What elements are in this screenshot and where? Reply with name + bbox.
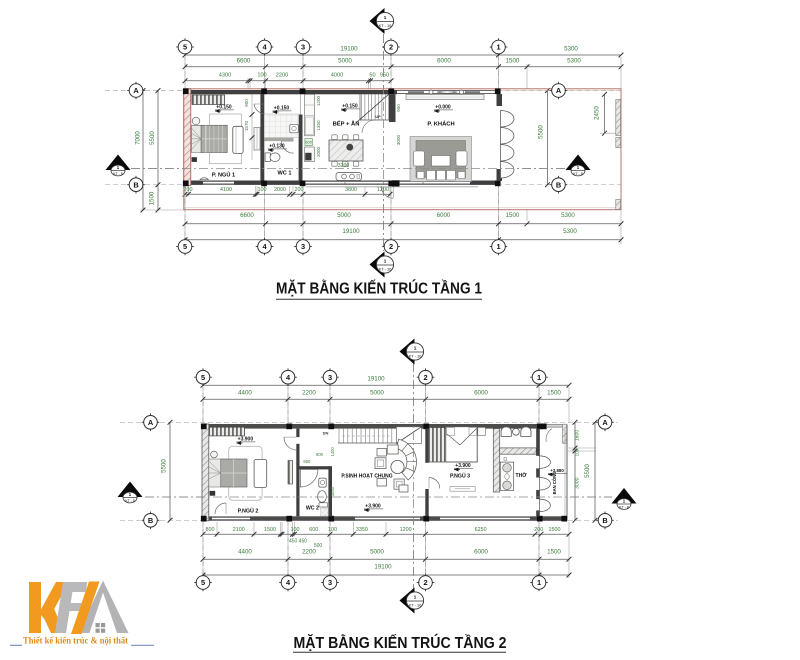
svg-text:1: 1: [537, 373, 541, 382]
svg-text:3: 3: [328, 373, 332, 382]
svg-text:3800: 3800: [345, 187, 357, 193]
svg-text:19100: 19100: [342, 228, 360, 235]
svg-text:3: 3: [301, 43, 305, 52]
svg-text:1200: 1200: [316, 95, 321, 106]
svg-text:19100: 19100: [367, 376, 385, 383]
svg-text:1: 1: [414, 595, 417, 600]
svg-text:450 450: 450 450: [289, 539, 307, 545]
svg-text:50: 50: [369, 73, 375, 79]
svg-text:200: 200: [295, 187, 304, 193]
svg-text:KT - 10: KT - 10: [409, 603, 423, 608]
svg-text:1200: 1200: [400, 527, 412, 533]
svg-text:1500: 1500: [506, 212, 520, 219]
svg-text:THỜ: THỜ: [516, 471, 528, 479]
svg-text:B: B: [556, 180, 561, 189]
svg-text:B: B: [602, 516, 607, 525]
svg-text:BAN CÔNG: BAN CÔNG: [552, 472, 557, 495]
svg-text:+3.880: +3.880: [550, 468, 564, 473]
svg-text:A: A: [133, 86, 139, 95]
svg-text:BẾP + ĂN: BẾP + ĂN: [333, 121, 360, 128]
svg-text:6000: 6000: [474, 548, 488, 555]
svg-text:1500: 1500: [547, 390, 561, 397]
svg-text:200: 200: [534, 527, 543, 533]
svg-text:A: A: [602, 418, 608, 427]
svg-text:2200: 2200: [302, 548, 316, 555]
svg-text:1: 1: [537, 578, 541, 587]
svg-text:5500: 5500: [584, 464, 591, 478]
svg-text:5: 5: [201, 578, 205, 587]
svg-text:2200: 2200: [276, 73, 288, 79]
svg-text:B: B: [133, 180, 138, 189]
svg-text:5300: 5300: [564, 46, 578, 53]
svg-text:KT - 8: KT - 8: [619, 506, 629, 510]
svg-text:4000: 4000: [331, 73, 343, 79]
svg-text:19100: 19100: [340, 46, 358, 53]
svg-text:KT - 10: KT - 10: [409, 354, 423, 359]
svg-text:WC 2: WC 2: [306, 506, 319, 512]
svg-text:1570: 1570: [244, 120, 249, 131]
svg-text:1500: 1500: [264, 527, 276, 533]
svg-text:100: 100: [291, 527, 300, 533]
svg-text:2: 2: [423, 578, 427, 587]
svg-text:5300: 5300: [567, 57, 581, 64]
svg-text:2: 2: [389, 242, 393, 251]
svg-text:1: 1: [414, 346, 417, 351]
svg-text:100: 100: [328, 527, 337, 533]
svg-text:19100: 19100: [374, 564, 392, 571]
svg-text:2: 2: [423, 373, 427, 382]
svg-text:A: A: [556, 86, 562, 95]
svg-text:2100: 2100: [233, 527, 245, 533]
svg-text:4400: 4400: [238, 548, 252, 555]
svg-text:800: 800: [206, 527, 215, 533]
svg-text:7000: 7000: [135, 131, 142, 145]
svg-text:950: 950: [380, 73, 389, 79]
svg-text:KT - 10: KT - 10: [379, 267, 393, 272]
svg-text:1500: 1500: [506, 57, 520, 64]
svg-text:6250: 6250: [475, 527, 487, 533]
svg-text:3050: 3050: [330, 486, 335, 496]
svg-text:5500: 5500: [161, 459, 168, 473]
svg-text:200: 200: [184, 187, 193, 193]
svg-text:A: A: [148, 418, 154, 427]
svg-text:100: 100: [257, 73, 266, 79]
svg-text:1500: 1500: [549, 527, 561, 533]
svg-text:3200: 3200: [338, 163, 350, 169]
svg-text:5500: 5500: [538, 125, 545, 139]
svg-text:850: 850: [303, 459, 311, 464]
svg-text:950: 950: [396, 104, 401, 112]
svg-text:5000: 5000: [337, 212, 351, 219]
svg-text:2: 2: [389, 43, 393, 52]
svg-text:B: B: [148, 516, 153, 525]
svg-text:1: 1: [384, 259, 387, 264]
svg-text:6000: 6000: [474, 390, 488, 397]
svg-text:3000: 3000: [574, 477, 580, 489]
svg-text:1500: 1500: [149, 191, 156, 205]
svg-text:5300: 5300: [563, 228, 577, 235]
svg-text:4400: 4400: [238, 390, 252, 397]
svg-text:6600: 6600: [240, 212, 254, 219]
svg-text:Thiết kế kiến trúc & nội thất: Thiết kế kiến trúc & nội thất: [23, 636, 129, 646]
svg-text:3350: 3350: [356, 527, 368, 533]
svg-text:100: 100: [574, 448, 579, 456]
svg-text:3: 3: [328, 578, 332, 587]
svg-text:1400: 1400: [330, 446, 335, 456]
svg-text:MẶT BẰNG KIẾN TRÚC TẦNG 2: MẶT BẰNG KIẾN TRÚC TẦNG 2: [294, 634, 507, 652]
svg-text:5300: 5300: [561, 212, 575, 219]
svg-text:5: 5: [201, 373, 205, 382]
svg-text:2200: 2200: [302, 390, 316, 397]
svg-text:3: 3: [301, 242, 305, 251]
svg-text:600: 600: [305, 140, 312, 145]
svg-text:KT - 8: KT - 8: [125, 499, 135, 503]
svg-text:600: 600: [309, 527, 318, 533]
svg-text:4300: 4300: [219, 73, 231, 79]
svg-text:5500: 5500: [149, 131, 156, 145]
svg-text:MẶT BẰNG KIẾN TRÚC TẦNG 1: MẶT BẰNG KIẾN TRÚC TẦNG 1: [276, 280, 482, 298]
svg-text:600: 600: [316, 452, 324, 457]
svg-text:1: 1: [496, 43, 500, 52]
svg-text:P.NGỦ 2: P.NGỦ 2: [238, 508, 259, 515]
svg-text:P. NGỦ 1: P. NGỦ 1: [212, 172, 235, 179]
svg-text:2000: 2000: [274, 187, 286, 193]
svg-text:KT - 8: KT - 8: [113, 172, 123, 176]
svg-text:900: 900: [244, 99, 249, 107]
svg-text:5000: 5000: [370, 548, 384, 555]
svg-text:5: 5: [183, 43, 187, 52]
svg-text:6600: 6600: [237, 57, 251, 64]
svg-text:5000: 5000: [338, 57, 352, 64]
svg-text:2450: 2450: [594, 106, 601, 120]
svg-text:P.NGỦ 3: P.NGỦ 3: [450, 473, 470, 480]
svg-text:WC 1: WC 1: [278, 171, 292, 177]
svg-text:2000: 2000: [316, 146, 321, 157]
svg-text:6000: 6000: [437, 212, 451, 219]
svg-text:3000: 3000: [396, 134, 401, 145]
svg-text:1350: 1350: [316, 120, 321, 131]
svg-text:P. KHÁCH: P. KHÁCH: [427, 121, 454, 128]
svg-text:1: 1: [496, 242, 500, 251]
svg-text:1500: 1500: [547, 548, 561, 555]
svg-text:UP: UP: [375, 115, 381, 119]
svg-text:5000: 5000: [370, 390, 384, 397]
svg-text:1600: 1600: [574, 430, 580, 442]
svg-text:5: 5: [183, 242, 187, 251]
svg-text:100: 100: [258, 187, 267, 193]
svg-text:4100: 4100: [220, 187, 232, 193]
svg-text:6000: 6000: [437, 57, 451, 64]
svg-text:KT - 10: KT - 10: [379, 23, 393, 28]
svg-text:KT - 8: KT - 8: [573, 172, 583, 176]
svg-text:1: 1: [384, 15, 387, 20]
svg-text:DN: DN: [323, 431, 329, 436]
